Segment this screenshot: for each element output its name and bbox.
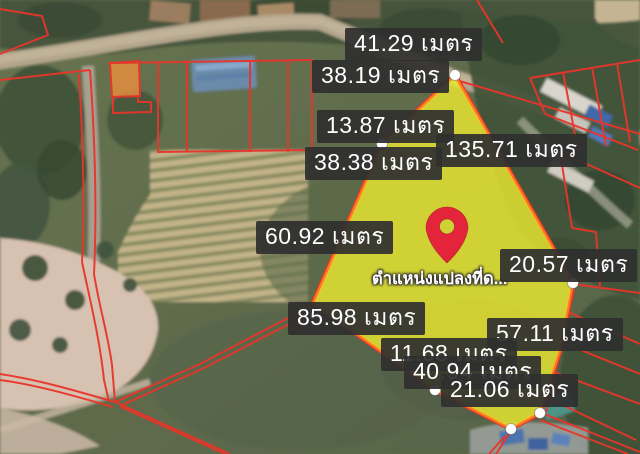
satellite-map [0, 0, 640, 454]
vertex-dot [568, 278, 579, 289]
vertex-dot [430, 385, 441, 396]
vertex-dot [506, 424, 517, 435]
pin-caption: ตำแหน่งแปลงที่ด... [372, 266, 507, 292]
map-canvas[interactable]: ตำแหน่งแปลงที่ด... 41.29 เมตร38.19 เมตร1… [0, 0, 640, 454]
vertex-dot [535, 408, 546, 419]
vertex-dot [377, 139, 388, 150]
vertex-dot [450, 70, 461, 81]
